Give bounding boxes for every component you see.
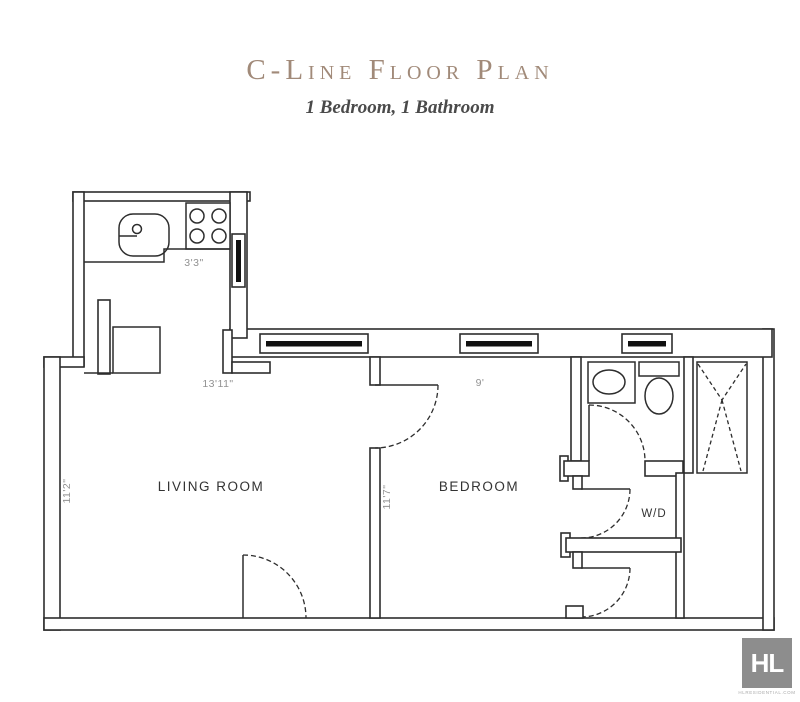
living-room-depth-label: 11'2" <box>61 479 73 504</box>
wall-closet-bottom-stub <box>566 606 583 618</box>
wall-partition-top-stub <box>370 357 380 385</box>
wall-kitchen-passage-stub-v <box>223 330 232 373</box>
doors <box>243 385 645 618</box>
wall-right-outer <box>763 329 774 630</box>
kitchen-window-glass <box>236 240 241 282</box>
wall-livingroom-left <box>44 357 60 630</box>
bathroom-door-swing-arc <box>589 405 645 461</box>
washer-dryer-label: W/D <box>641 508 666 520</box>
hl-logo: HL <box>742 638 792 688</box>
wall-kitchen-passage-stub-h <box>232 362 270 373</box>
living-room-label: LIVING ROOM <box>158 479 265 494</box>
wall-partition-bedroom <box>370 448 380 618</box>
bathroom <box>560 357 747 481</box>
toilet-bowl <box>645 378 673 414</box>
toilet-tank <box>639 362 679 376</box>
kitchen-dimension-label: 3'3" <box>184 257 203 269</box>
bedroom-label: BEDROOM <box>439 479 519 494</box>
floor-plan-page: C-Line Floor Plan 1 Bedroom, 1 Bathroom <box>0 0 800 702</box>
wall-kitchen-top <box>73 192 250 201</box>
shower-stall <box>697 362 747 473</box>
bedroom-width-label: 9' <box>476 377 485 389</box>
refrigerator <box>113 327 160 373</box>
hl-logo-caption: HLRESIDENTIAL.COM <box>734 690 800 695</box>
wall-bottom <box>44 618 774 630</box>
kitchen-sink <box>119 214 169 256</box>
bedroom-door-swing-arc <box>375 385 438 448</box>
closet-door-swing-arc <box>581 568 630 617</box>
bedroom-window-glass <box>466 341 532 347</box>
bathroom-window-glass <box>628 341 666 347</box>
wall-kitchen-pier <box>98 300 110 374</box>
wall-bathroom-left <box>571 357 581 461</box>
wall-wd-left-stub <box>573 476 582 489</box>
wall-kitchen-left <box>73 192 84 366</box>
bedroom-depth-label: 11'7" <box>381 485 393 510</box>
wall-wd-closet-divider <box>566 538 681 552</box>
entry-door-swing-arc <box>243 555 306 618</box>
closets <box>561 473 684 618</box>
bathroom-sink-counter <box>588 362 635 403</box>
wall-bathroom-bottom-left <box>564 461 589 476</box>
wall-closet-left-stub <box>573 552 582 568</box>
wall-shower-divider <box>684 357 693 473</box>
washer-dryer-door-swing-arc <box>581 489 630 538</box>
floor-plan-drawing: LIVING ROOM BEDROOM W/D 3'3" 13'11" 9' 1… <box>0 0 800 702</box>
livingroom-window-glass <box>266 341 362 347</box>
living-room-width-label: 13'11" <box>202 378 233 390</box>
